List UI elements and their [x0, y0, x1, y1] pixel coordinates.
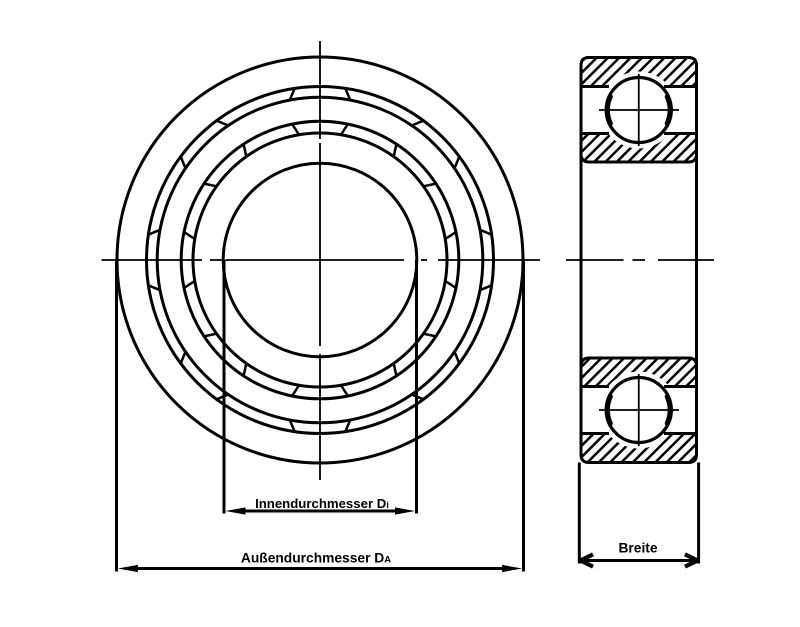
svg-text:Innendurchmesser Di: Innendurchmesser Di: [255, 496, 389, 511]
svg-text:Breite: Breite: [618, 541, 657, 556]
svg-text:Außendurchmesser DA: Außendurchmesser DA: [241, 551, 391, 566]
